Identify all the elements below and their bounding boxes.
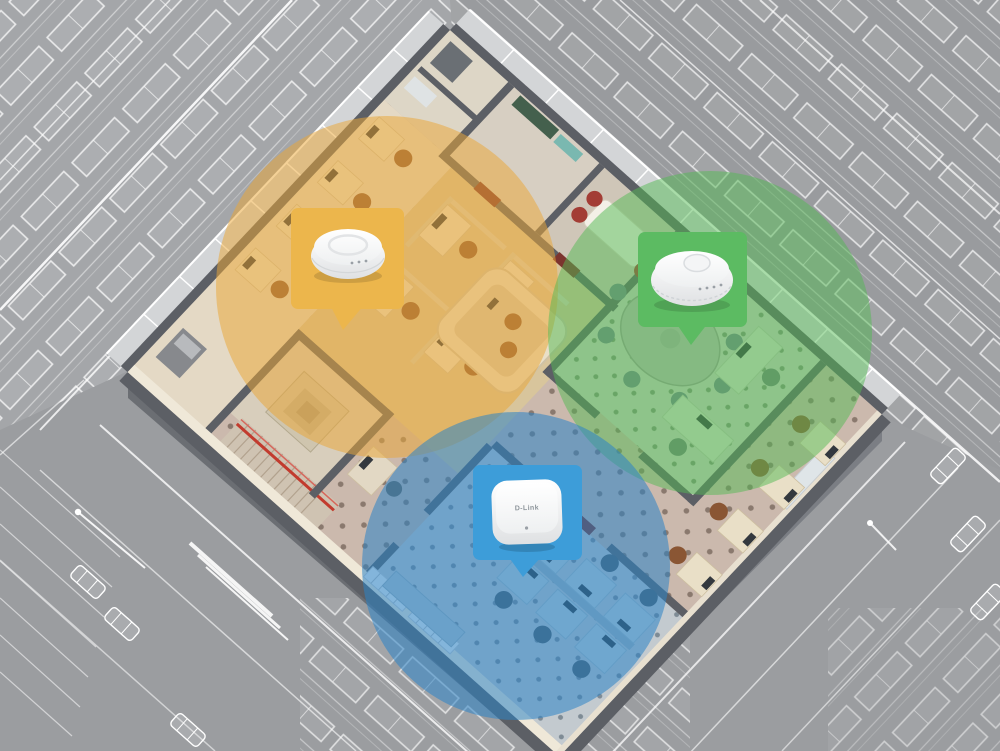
wireframe-building-bottom-right [828,608,1000,751]
access-point-round-icon [311,229,385,283]
access-point-round-large-icon [651,251,733,312]
access-point-square-icon: D-Link [491,479,563,552]
dlink-logo: D-Link [515,505,539,513]
wifi-coverage-illustration: D-Link [0,0,1000,751]
illustration-canvas: D-Link [0,0,1000,751]
